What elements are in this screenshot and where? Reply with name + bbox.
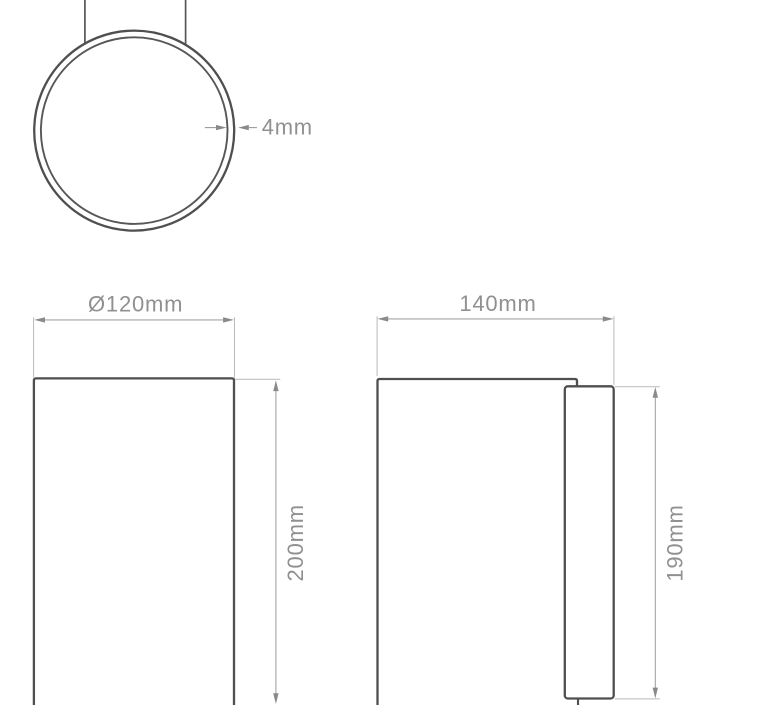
svg-text:140mm: 140mm (459, 291, 536, 316)
svg-text:4mm: 4mm (262, 115, 313, 140)
svg-text:Ø120mm: Ø120mm (88, 292, 183, 317)
svg-text:200mm: 200mm (283, 504, 308, 581)
svg-text:190mm: 190mm (662, 504, 687, 581)
